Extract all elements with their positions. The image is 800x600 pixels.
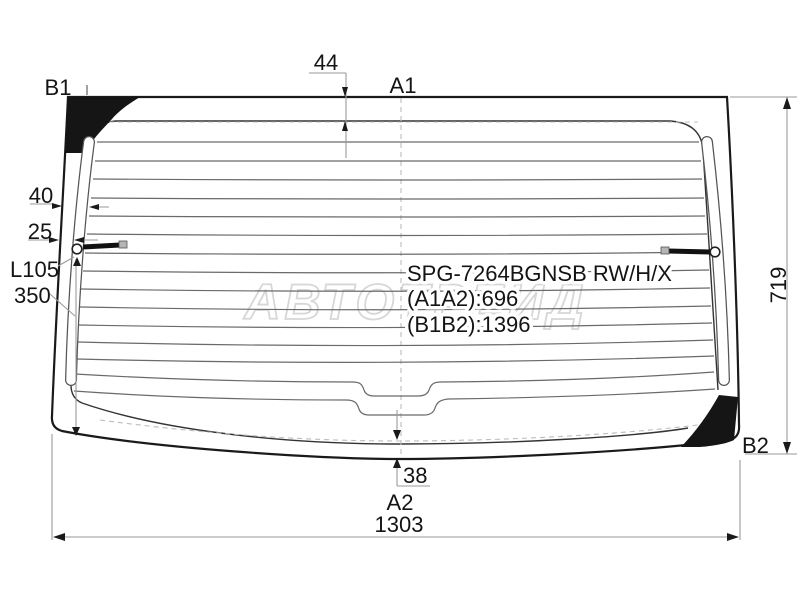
dim-label-44: 44 xyxy=(314,50,338,75)
dim-label-25: 25 xyxy=(28,219,52,244)
glass-diagram-canvas: АВТОТРЕЙД xyxy=(0,0,800,600)
point-label-a1: A1 xyxy=(390,73,417,98)
dim-label-719: 719 xyxy=(766,267,791,304)
point-label-b1: B1 xyxy=(45,75,72,100)
rear-window-diagram: АВТОТРЕЙД xyxy=(0,0,800,600)
dim-label-1303: 1303 xyxy=(375,512,424,537)
dim-label-40: 40 xyxy=(29,183,53,208)
dim-label-38: 38 xyxy=(403,463,427,488)
dim-label-350: 350 xyxy=(14,283,51,308)
point-label-b2: B2 xyxy=(742,433,769,458)
part-code-text: SPG-7264BGNSB RW/H/X xyxy=(407,261,672,286)
part-dim-a1a2-text: (A1A2):696 xyxy=(407,286,518,311)
part-dim-b1b2-text: (B1B2):1396 xyxy=(407,312,531,337)
dim-label-l105: L105 xyxy=(10,257,59,282)
